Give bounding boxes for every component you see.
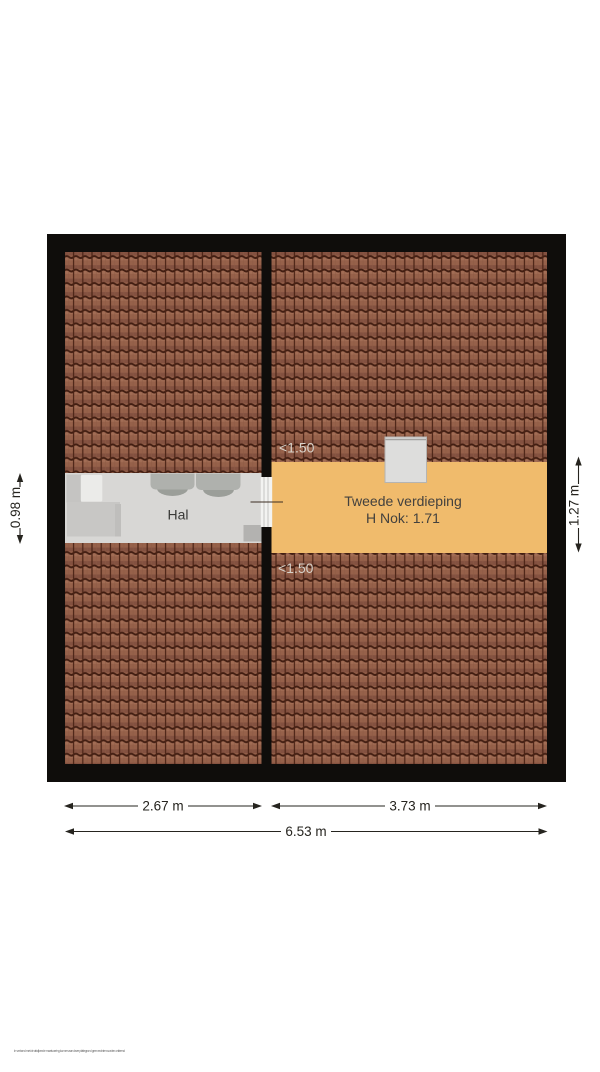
svg-text:<1.50: <1.50 — [278, 560, 314, 576]
svg-text:2.67 m: 2.67 m — [142, 799, 183, 814]
svg-text:Hal: Hal — [167, 507, 188, 523]
svg-text:In verband met de afwijkende m: In verband met de afwijkende maatvoering… — [14, 1049, 125, 1053]
svg-text:Tweede verdieping: Tweede verdieping — [344, 493, 462, 509]
svg-text:H Nok: 1.71: H Nok: 1.71 — [366, 510, 440, 526]
svg-text:3.73 m: 3.73 m — [389, 799, 430, 814]
svg-text:6.53 m: 6.53 m — [285, 824, 326, 839]
svg-text:<1.50: <1.50 — [279, 440, 315, 456]
svg-text:1.27 m: 1.27 m — [567, 485, 582, 526]
svg-text:0.98 m: 0.98 m — [8, 487, 23, 528]
